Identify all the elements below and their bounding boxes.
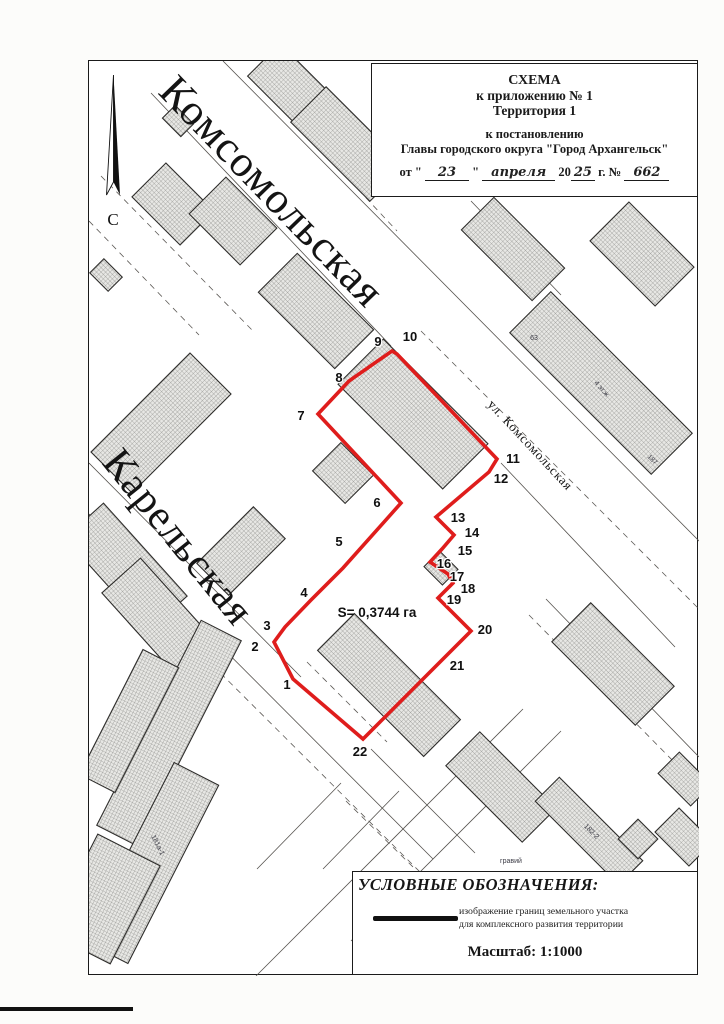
boundary-line-sample <box>373 916 458 921</box>
doc-number-handwritten: 662 <box>624 165 669 181</box>
legend-heading: УСЛОВНЫЕ ОБОЗНАЧЕНИЯ: <box>358 875 697 895</box>
north-arrow: С <box>107 75 121 229</box>
scale-label: Масштаб: 1:1000 <box>353 944 697 961</box>
boundary-point-label: 14 <box>465 525 480 540</box>
boundary-point-label: 4 <box>300 585 308 600</box>
boundary-point-label: 18 <box>461 581 475 596</box>
date-number-sign: г. № <box>598 165 621 179</box>
building-footprint <box>655 808 699 866</box>
boundary-point-label: 3 <box>263 618 270 633</box>
legend-item: изображение границ земельного участка дл… <box>353 905 697 939</box>
date-month-handwritten: апреля <box>482 165 555 181</box>
boundary-point-label: 9 <box>374 334 381 349</box>
boundary-point-label: 13 <box>451 510 465 525</box>
legend-desc-line2: для комплексного развития территории <box>459 918 684 931</box>
boundary-point-label: 12 <box>494 471 508 486</box>
boundary-point-label: 19 <box>447 592 461 607</box>
boundary-point-label: 11 <box>506 451 520 466</box>
boundary-point-label: 7 <box>297 408 304 423</box>
date-year-prefix: 20 <box>558 165 571 179</box>
date-quote: " <box>472 165 479 179</box>
title-line-authority: Главы городского округа "Город Архангель… <box>372 142 697 157</box>
date-year-handwritten: 25 <box>571 165 595 181</box>
boundary-point-label: 5 <box>335 534 342 549</box>
north-label: С <box>107 210 118 229</box>
boundary-point-label: 10 <box>403 329 417 344</box>
legend-item-description: изображение границ земельного участка дл… <box>459 905 684 931</box>
building-footprint <box>658 752 699 806</box>
building-footprint <box>313 443 374 504</box>
title-line-resolution: к постановлению <box>372 127 697 142</box>
map-frame: 631874 эт.ж181а-1182-2гравий Комсомольск… <box>88 60 698 975</box>
building-footprint <box>446 732 556 842</box>
building-footprint <box>552 603 674 725</box>
scan-artifact-bar <box>0 1007 133 1011</box>
boundary-point-label: 20 <box>478 622 492 637</box>
building-label: гравий <box>500 857 522 865</box>
boundary-point-label: 6 <box>373 495 380 510</box>
boundary-point-label: 8 <box>335 370 342 385</box>
building-footprint <box>90 259 123 292</box>
title-date-line: от " 23 " апреля 2025 г. № 662 <box>372 165 697 181</box>
road-edge-line <box>323 791 399 869</box>
title-line-territory: Территория 1 <box>372 103 697 118</box>
map-canvas: 631874 эт.ж181а-1182-2гравий Комсомольск… <box>89 61 699 976</box>
date-prefix: от " <box>400 165 422 179</box>
boundary-point-label: 21 <box>450 658 464 673</box>
legend-box: УСЛОВНЫЕ ОБОЗНАЧЕНИЯ: изображение границ… <box>352 871 698 975</box>
building-label: 63 <box>530 335 538 342</box>
road-edge-line <box>257 783 341 869</box>
date-day-handwritten: 23 <box>425 165 469 181</box>
boundary-point-label: 2 <box>251 639 258 654</box>
title-block: СХЕМА к приложению № 1 Территория 1 к по… <box>371 63 698 197</box>
boundary-point-label: 22 <box>353 744 367 759</box>
building-footprint <box>590 202 694 306</box>
boundary-point-label: 1 <box>283 677 290 692</box>
title-line-schema: СХЕМА <box>372 73 697 88</box>
scanned-map-page: 631874 эт.ж181а-1182-2гравий Комсомольск… <box>0 0 724 1024</box>
plot-area-label: S= 0,3744 га <box>338 605 417 620</box>
title-line-annex: к приложению № 1 <box>372 88 697 103</box>
boundary-point-label: 15 <box>458 543 472 558</box>
building-footprint <box>461 197 564 300</box>
legend-desc-line1: изображение границ земельного участка <box>459 905 684 918</box>
building-footprint <box>318 614 461 757</box>
